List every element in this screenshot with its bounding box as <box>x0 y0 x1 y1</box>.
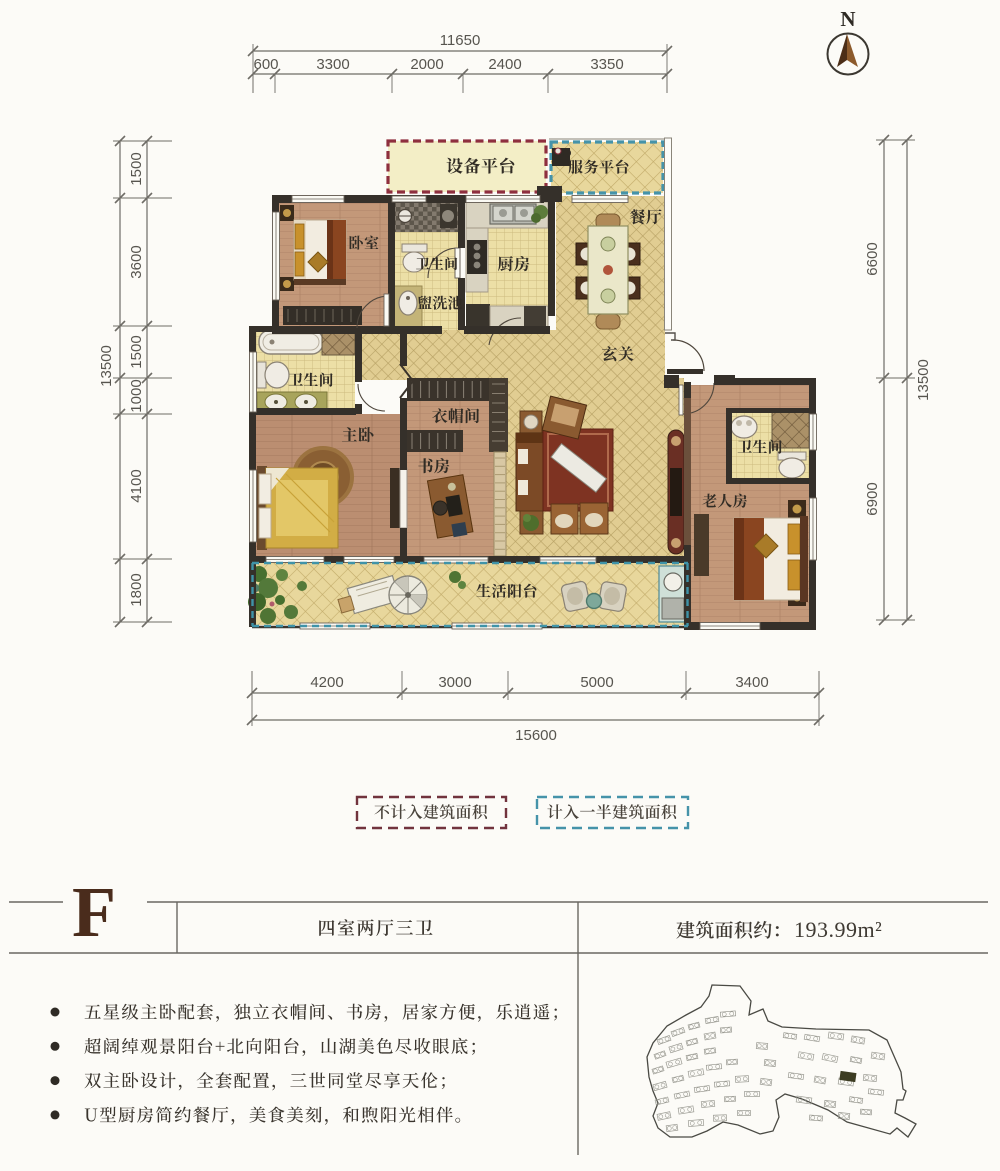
svg-text:6600: 6600 <box>864 242 881 275</box>
svg-text:13500: 13500 <box>98 345 115 387</box>
svg-text:N: N <box>840 7 855 31</box>
svg-text:1000: 1000 <box>128 379 145 412</box>
svg-text:2400: 2400 <box>488 56 521 73</box>
svg-text:11650: 11650 <box>440 32 481 49</box>
svg-text:3400: 3400 <box>735 674 768 691</box>
svg-text:3350: 3350 <box>590 56 623 73</box>
svg-text:193.99m²: 193.99m² <box>794 917 882 942</box>
svg-text:5000: 5000 <box>580 674 613 691</box>
svg-text:3300: 3300 <box>316 56 349 73</box>
svg-text:4200: 4200 <box>310 674 343 691</box>
svg-text:F: F <box>72 872 116 952</box>
svg-text:600: 600 <box>253 56 278 73</box>
svg-text:3600: 3600 <box>128 245 145 278</box>
svg-text:1500: 1500 <box>128 335 145 368</box>
svg-text:4100: 4100 <box>128 469 145 502</box>
svg-text:1800: 1800 <box>128 573 145 606</box>
svg-text:1500: 1500 <box>128 152 145 185</box>
svg-text:15600: 15600 <box>515 727 557 744</box>
svg-text:2000: 2000 <box>410 56 443 73</box>
svg-text:6900: 6900 <box>864 482 881 515</box>
svg-text:3000: 3000 <box>438 674 471 691</box>
svg-text:13500: 13500 <box>915 359 932 401</box>
